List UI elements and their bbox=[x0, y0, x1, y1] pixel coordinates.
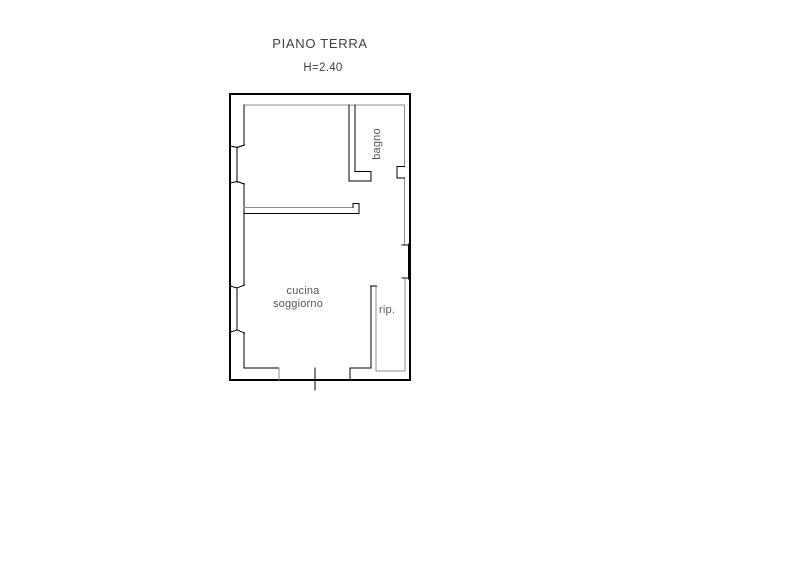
room-label-cucina: cucina bbox=[253, 285, 353, 297]
floor-plan-svg bbox=[0, 0, 798, 585]
room-label-rip: rip. bbox=[367, 304, 407, 316]
window-2-jamb-top bbox=[231, 286, 238, 288]
window-1-jamb-top bbox=[237, 145, 245, 148]
window-2-jamb-top bbox=[237, 285, 245, 288]
room-label-soggiorno: soggiorno bbox=[248, 298, 348, 310]
room-label-bagno: bagno bbox=[371, 104, 383, 184]
plan-sheet: PIANO TERRA H=2.40 bagno cucina soggiorn… bbox=[0, 0, 798, 585]
window-1-jamb-top bbox=[231, 146, 238, 148]
window-1-jamb-bottom bbox=[237, 182, 245, 185]
window-2-jamb-bottom bbox=[231, 330, 238, 332]
window-2-jamb-bottom bbox=[237, 330, 245, 333]
window-1-jamb-bottom bbox=[231, 182, 238, 184]
